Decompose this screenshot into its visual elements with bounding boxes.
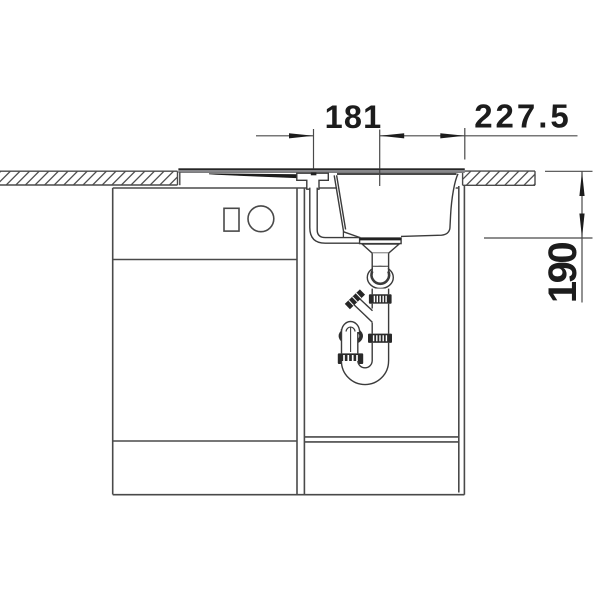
svg-text:227.5: 227.5 bbox=[474, 98, 572, 135]
svg-text:181: 181 bbox=[325, 99, 383, 135]
svg-text:190: 190 bbox=[541, 243, 585, 303]
